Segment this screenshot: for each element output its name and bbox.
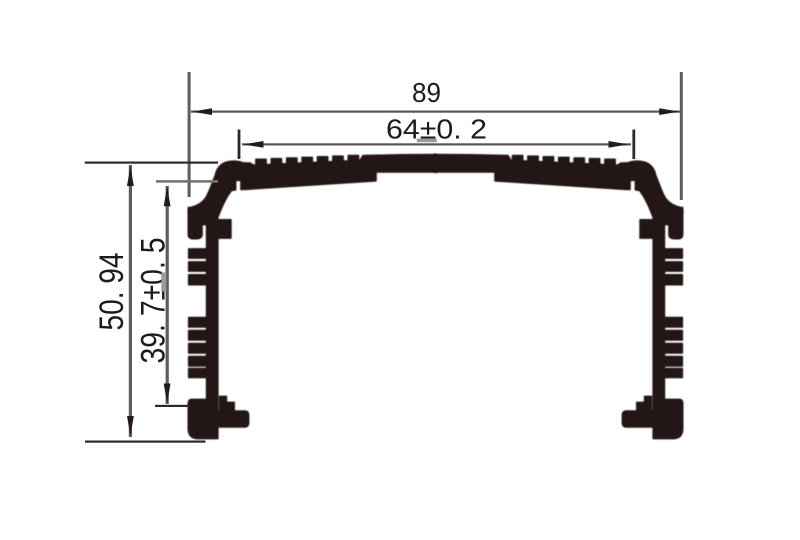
svg-text:39. 7±0. 5: 39. 7±0. 5 [135, 238, 173, 364]
svg-text:50. 94: 50. 94 [93, 253, 131, 331]
svg-text:64±0. 2: 64±0. 2 [386, 114, 487, 145]
svg-text:89: 89 [412, 77, 441, 108]
